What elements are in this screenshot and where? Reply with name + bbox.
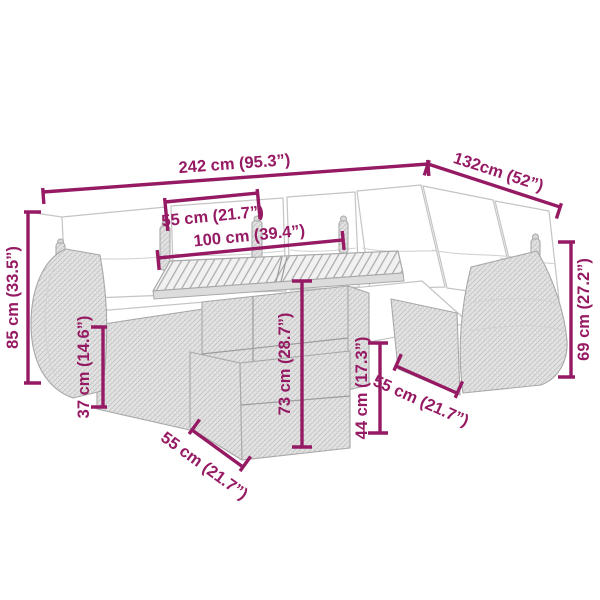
dimension-diagram: 242 cm (95.3”) 132cm (52”) 55 cm (21.7”)…	[0, 0, 600, 600]
armrest-left	[31, 249, 107, 398]
dim-armrest-height-label: 69 cm (27.2”)	[575, 258, 593, 361]
dim-seat-height: 37 cm (14.6”)	[75, 316, 107, 419]
footstool-side	[190, 352, 242, 460]
dim-table-height-label: 73 cm (28.7”)	[276, 313, 294, 416]
dim-back-height-label: 85 cm (33.5”)	[4, 246, 22, 349]
diagram-svg: 242 cm (95.3”) 132cm (52”) 55 cm (21.7”)…	[0, 0, 600, 600]
dim-seat-height-label: 37 cm (14.6”)	[75, 316, 93, 419]
dim-total-width-label: 242 cm (95.3”)	[178, 151, 291, 177]
dim-stool-height-label: 44 cm (17.3”)	[353, 337, 371, 440]
seat-front-left	[97, 309, 203, 433]
footstool-front	[240, 351, 350, 460]
